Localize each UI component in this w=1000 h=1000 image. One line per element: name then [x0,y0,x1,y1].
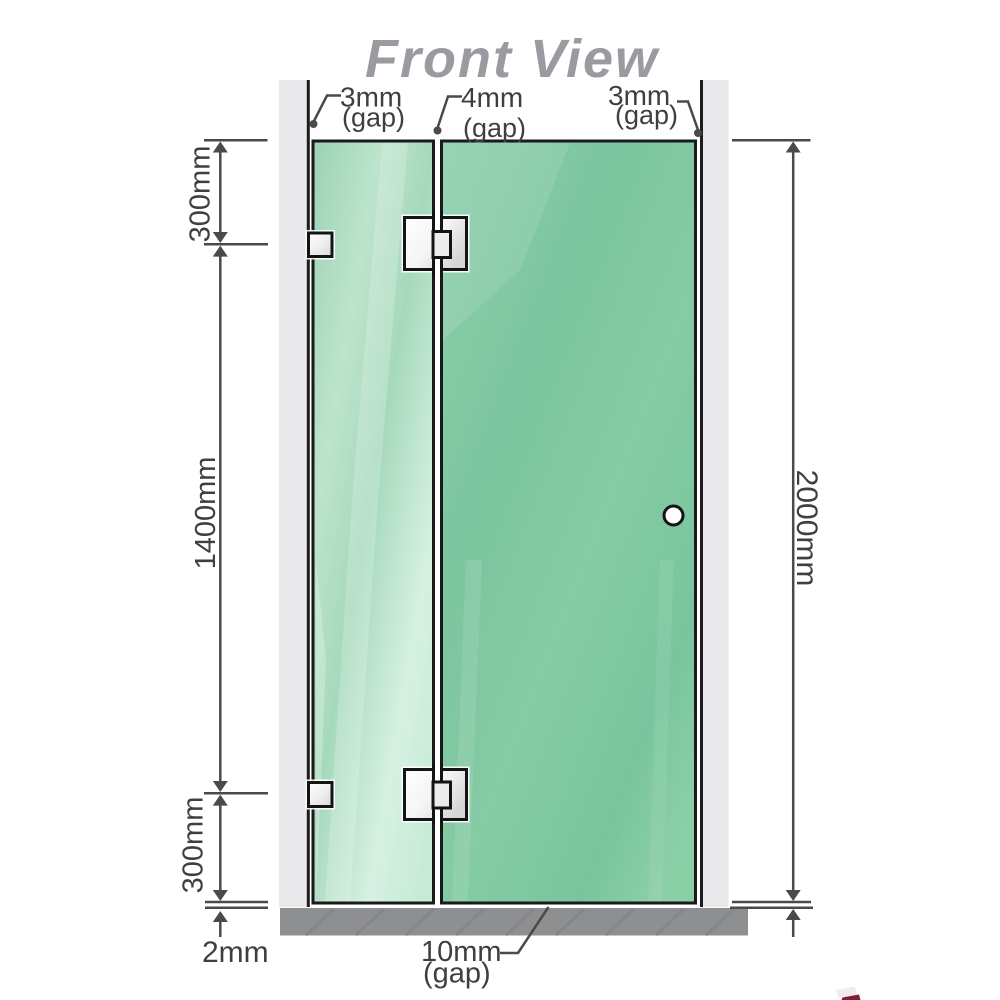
svg-text:2mm: 2mm [202,936,269,969]
svg-text:(gap): (gap) [463,113,526,143]
svg-text:1400mm: 1400mm [190,457,222,570]
svg-text:2000mm: 2000mm [790,470,823,587]
svg-text:300mm: 300mm [178,797,210,894]
svg-text:4mm: 4mm [461,82,523,113]
svg-text:(gap): (gap) [615,100,678,130]
svg-text:(gap): (gap) [342,103,405,133]
svg-text:300mm: 300mm [185,146,217,243]
svg-text:(gap): (gap) [423,958,491,990]
